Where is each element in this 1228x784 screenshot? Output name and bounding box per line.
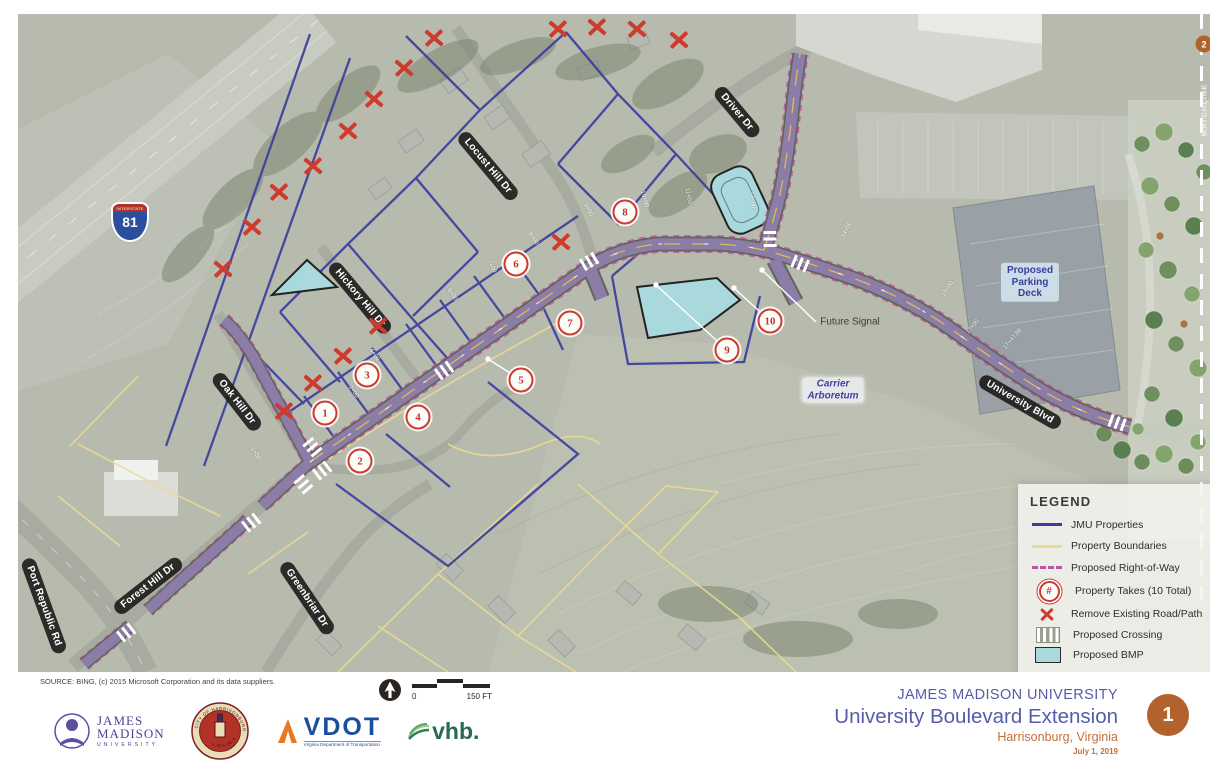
legend-item-proposed-bmp: Proposed BMP	[1030, 647, 1208, 663]
sheet-footer: SOURCE: BING, (c) 2015 Microsoft Corpora…	[0, 672, 1228, 784]
vhb-name: vhb.	[432, 722, 479, 740]
legend-item-property-boundaries: Property Boundaries	[1030, 538, 1208, 555]
jmu-logo-line1: JAMES	[97, 714, 165, 727]
jmu-portrait-icon	[52, 709, 92, 753]
vhb-logo: vhb.	[407, 722, 479, 740]
sheet-date: July 1, 2019	[834, 747, 1118, 757]
legend-symbol-bmp	[1035, 647, 1061, 663]
legend-items: JMU PropertiesProperty BoundariesPropose…	[1030, 516, 1208, 663]
vhb-leaf-icon	[407, 722, 431, 740]
legend-item-remove-existing-road-path: Remove Existing Road/Path	[1030, 606, 1208, 622]
scale-bar	[412, 678, 492, 690]
legend-item-label: Property Boundaries	[1071, 540, 1167, 552]
sheet-number-badge: 1	[1147, 694, 1189, 736]
vdot-swoosh-icon	[275, 716, 301, 746]
map-source-credit: SOURCE: BING, (c) 2015 Microsoft Corpora…	[40, 677, 275, 686]
legend-symbol-line-yellow	[1030, 538, 1064, 555]
scale-labels: 0 150 FT	[412, 692, 492, 701]
legend-item-proposed-right-of-way: Proposed Right-of-Way	[1030, 559, 1208, 576]
jmu-logo-line2: MADISON	[97, 727, 165, 740]
vdot-tagline: Virginia Department of Transportation	[304, 741, 381, 748]
jmu-logo-text: JAMES MADISON UNIVERSITY.	[97, 714, 165, 748]
legend-symbol-crossing	[1036, 627, 1060, 643]
legend-item-label: Proposed Crossing	[1073, 629, 1162, 641]
legend-symbol-line-blue	[1030, 516, 1064, 533]
legend-item-jmu-properties: JMU Properties	[1030, 516, 1208, 533]
partner-logos: JAMES MADISON UNIVERSITY. CITY OF HARRIS…	[52, 702, 479, 760]
jmu-logo-line3: UNIVERSITY.	[97, 743, 165, 748]
legend-item-label: Proposed Right-of-Way	[1071, 562, 1180, 574]
legend-item-label: Proposed BMP	[1073, 649, 1144, 661]
title-block: JAMES MADISON UNIVERSITY University Boul…	[834, 686, 1118, 757]
legend-symbol-dash	[1030, 559, 1064, 576]
jmu-logo: JAMES MADISON UNIVERSITY.	[52, 709, 165, 753]
legend: LEGEND JMU PropertiesProperty Boundaries…	[1018, 484, 1210, 672]
sheet-title: University Boulevard Extension	[834, 704, 1118, 730]
north-arrow-icon	[378, 678, 402, 702]
scale-max-label: 150 FT	[467, 692, 492, 701]
legend-item-label: JMU Properties	[1071, 519, 1143, 531]
vdot-logo-text: VDOT Virginia Department of Transportati…	[304, 715, 381, 748]
vdot-logo: VDOT Virginia Department of Transportati…	[275, 715, 381, 748]
legend-item-label: Remove Existing Road/Path	[1071, 608, 1202, 620]
legend-title: LEGEND	[1030, 494, 1208, 509]
legend-item-label: Property Takes (10 Total)	[1075, 585, 1191, 597]
sheet-location: Harrisonburg, Virginia	[834, 730, 1118, 746]
legend-item-property-takes-10-total: #Property Takes (10 Total)	[1030, 581, 1208, 602]
title-block-org: JAMES MADISON UNIVERSITY	[834, 686, 1118, 704]
legend-symbol-x	[1039, 606, 1055, 622]
legend-symbol-take: #	[1039, 581, 1060, 602]
map-canvas: INTERSTATE 81 2 MATCHLINE Locust Hill Dr…	[18, 14, 1210, 672]
harrisonburg-seal: CITY OF HARRISONBURG VIRGINIA	[191, 702, 249, 760]
scale-zero-label: 0	[412, 692, 416, 701]
legend-item-proposed-crossing: Proposed Crossing	[1030, 627, 1208, 643]
vdot-name: VDOT	[304, 715, 381, 740]
